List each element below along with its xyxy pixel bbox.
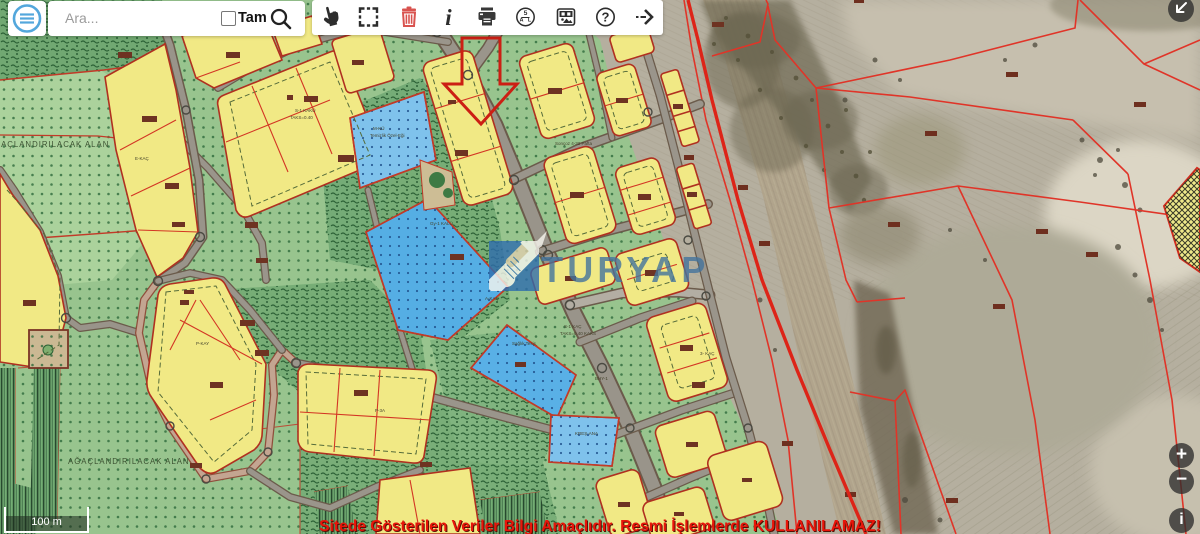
svg-text:E-KAÇ: E-KAÇ — [135, 156, 150, 161]
svg-text:P-KAY: P-KAY — [196, 341, 209, 346]
svg-text:S-1 KAKÜ: S-1 KAKÜ — [295, 107, 316, 113]
svg-text:TURYAP: TURYAP — [541, 249, 710, 290]
svg-text:S-1 KAÇ: S-1 KAÇ — [564, 324, 582, 329]
svg-text:BHY-1: BHY-1 — [595, 376, 608, 381]
svg-text:?: ? — [602, 10, 610, 25]
svg-text:AĞAÇLANDIRILACAK ALAN: AĞAÇLANDIRILACAK ALAN — [68, 457, 190, 466]
svg-text:TAKS=0.40: TAKS=0.40 — [290, 115, 313, 120]
svg-text:A: A — [520, 18, 524, 24]
svg-text:5: 5 — [524, 10, 528, 17]
svg-text:Gy-1 KALÜ: Gy-1 KALÜ — [430, 220, 453, 226]
svg-text:A-KAÇ: A-KAÇ — [485, 296, 500, 301]
svg-text:Sağlık Tesis: Sağlık Tesis — [512, 341, 537, 346]
svg-text:3- KAÇ: 3- KAÇ — [700, 351, 715, 356]
svg-text:TAKS=0.40 KAKS: TAKS=0.40 KAKS — [560, 331, 596, 336]
svg-text:Temizlik Özel-Eği: Temizlik Özel-Eği — [370, 132, 405, 138]
svg-text:Sonçoz 4-32 Pafta: Sonçoz 4-32 Pafta — [555, 141, 593, 146]
svg-text:ĞAÇLANDIRILACAK ALAN: ĞAÇLANDIRILACAK ALAN — [0, 140, 109, 149]
svg-text:M-KÜ: M-KÜ — [373, 125, 385, 131]
svg-text:i: i — [445, 5, 452, 30]
svg-text:P-3A: P-3A — [375, 408, 385, 413]
svg-text:KREŞ-ANA: KREŞ-ANA — [575, 431, 598, 436]
